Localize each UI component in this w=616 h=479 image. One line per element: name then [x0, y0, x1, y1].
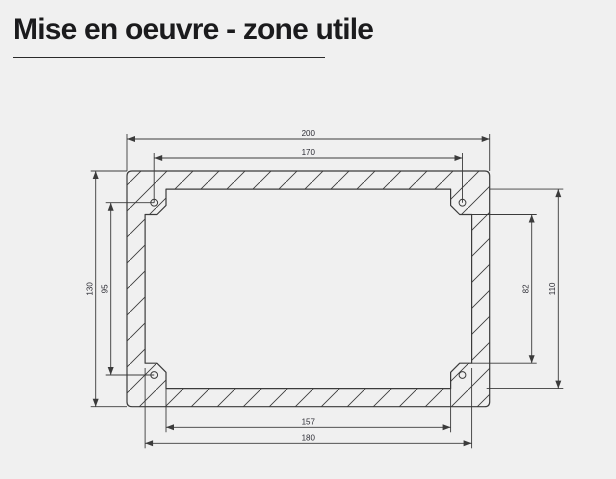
dim-label-outer-width: 200 [302, 129, 316, 138]
dim-label-opening-height: 110 [548, 282, 557, 295]
frame-section [127, 171, 490, 407]
dim-label-useful-zone-height: 82 [521, 284, 530, 293]
screw-hole-bottom-right [459, 372, 466, 379]
dim-label-outer-height: 130 [86, 282, 95, 296]
dim-label-hole-spacing-vertical: 95 [101, 284, 110, 293]
technical-drawing: 200 170 130 95 82 110 157 [0, 0, 616, 479]
dim-label-hole-spacing-horizontal: 170 [302, 148, 316, 157]
frame-hatched-body [127, 171, 490, 407]
dimension-opening-width: 180 [145, 368, 472, 448]
dim-label-opening-width: 180 [302, 433, 316, 442]
dim-label-useful-zone-width: 157 [302, 417, 316, 426]
technical-drawing-area: 200 170 130 95 82 110 157 [0, 0, 616, 479]
